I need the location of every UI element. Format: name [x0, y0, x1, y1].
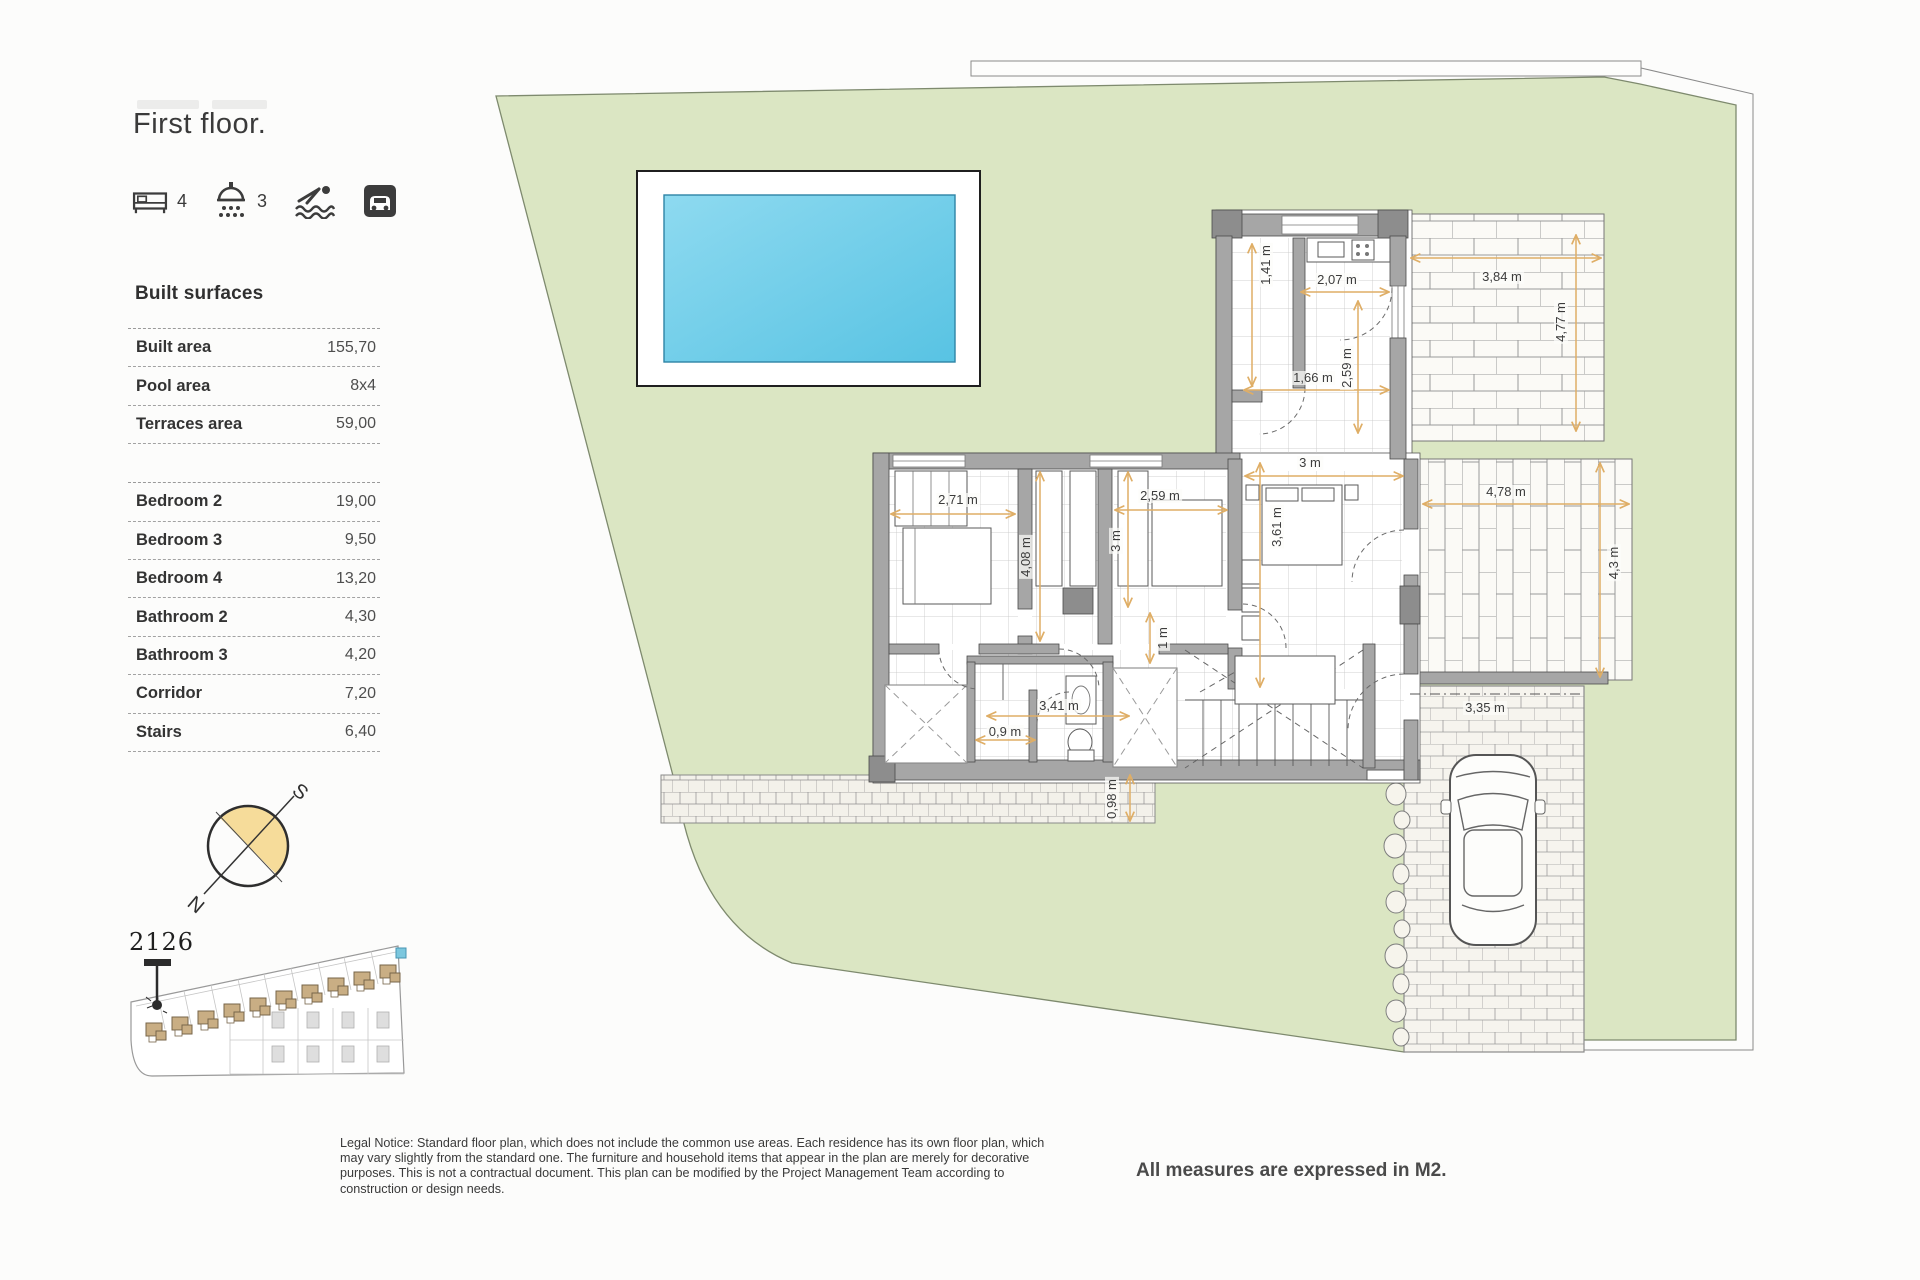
table-row: Pool area 8x4 — [128, 367, 380, 405]
unit-number: 2126 — [129, 928, 194, 956]
dimension-label: 1,66 m — [1291, 371, 1335, 385]
table-row: Bedroom 2 19,00 — [128, 483, 380, 521]
table-row: Terraces area 59,00 — [128, 406, 380, 444]
dimension-label: 3 m — [1109, 528, 1123, 554]
dimension-label: 2,59 m — [1138, 489, 1182, 503]
swimming-pool — [637, 171, 980, 386]
dimension-label: 4,78 m — [1484, 485, 1528, 499]
surfaces-heading: Built surfaces — [135, 283, 263, 305]
dimension-label: 1 m — [1156, 625, 1170, 651]
dimension-label: 2,71 m — [936, 493, 980, 507]
surfaces-group-areas: Built area 155,70 Pool area 8x4 Terraces… — [128, 328, 380, 444]
terrace-low-wall — [1418, 672, 1608, 684]
dimension-label: 1,41 m — [1259, 243, 1273, 287]
dimension-label: 3,61 m — [1270, 505, 1284, 549]
feature-icons-row: 4 3 — [131, 180, 397, 222]
dimension-label: 3 m — [1297, 456, 1323, 470]
dimension-label: 0,98 m — [1105, 777, 1119, 821]
legal-notice: Legal Notice: Standard floor plan, which… — [340, 1136, 1046, 1197]
site-thumbnail — [131, 946, 406, 1076]
dimension-label: 4,08 m — [1019, 535, 1033, 579]
swimmer-icon — [293, 183, 337, 219]
garage-icon — [363, 184, 397, 218]
feature-bedrooms: 4 — [131, 186, 187, 216]
terrace-top-right — [1406, 214, 1604, 441]
page-title: First floor. — [133, 108, 266, 141]
dimension-label: 3,35 m — [1463, 701, 1507, 715]
dimension-label: 2,59 m — [1340, 346, 1354, 390]
dimension-label: 3,84 m — [1480, 270, 1524, 284]
lightwell-1 — [885, 685, 967, 763]
dimension-label: 4,77 m — [1554, 300, 1568, 344]
table-row: Stairs 6,40 — [128, 714, 380, 752]
site-highlight-square — [396, 948, 406, 958]
bathroom-count: 3 — [257, 191, 267, 212]
table-row: Bedroom 4 13,20 — [128, 560, 380, 598]
table-row: Bathroom 2 4,30 — [128, 598, 380, 636]
surfaces-group-rooms: Bedroom 2 19,00 Bedroom 3 9,50 Bedroom 4… — [128, 482, 380, 752]
bed-icon — [131, 186, 169, 216]
table-row: Built area 155,70 — [128, 329, 380, 367]
bedroom-count: 4 — [177, 191, 187, 212]
table-row: Bathroom 3 4,20 — [128, 637, 380, 675]
shower-icon — [213, 180, 249, 222]
dimension-label: 2,07 m — [1315, 273, 1359, 287]
dimension-label: 3,41 m — [1037, 699, 1081, 713]
table-row: Corridor 7,20 — [128, 675, 380, 713]
lightwell-2 — [1113, 668, 1177, 767]
feature-pool — [293, 183, 337, 219]
dimension-label: 0,9 m — [987, 725, 1024, 739]
floor-plan-page: First floor. 4 3 — [0, 0, 1920, 1280]
compass — [204, 796, 294, 894]
car — [1441, 755, 1545, 945]
feature-garage — [363, 184, 397, 218]
north-boundary-strip — [971, 61, 1641, 76]
built-surfaces-table: Built area 155,70 Pool area 8x4 Terraces… — [128, 328, 380, 752]
dimension-label: 4,3 m — [1607, 545, 1621, 582]
table-row: Bedroom 3 9,50 — [128, 522, 380, 560]
feature-bathrooms: 3 — [213, 180, 267, 222]
measures-note: All measures are expressed in M2. — [1136, 1160, 1447, 1182]
